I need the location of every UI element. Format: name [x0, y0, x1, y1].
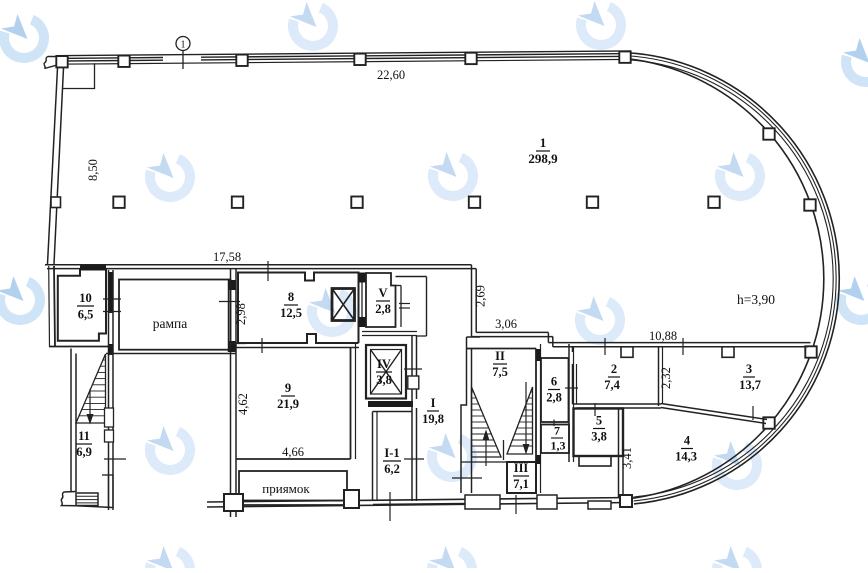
svg-text:6,2: 6,2 [384, 462, 400, 476]
svg-text:I-1: I-1 [384, 446, 399, 460]
svg-text:13,7: 13,7 [739, 378, 761, 392]
svg-text:1: 1 [540, 135, 547, 150]
svg-text:7,5: 7,5 [492, 365, 508, 379]
svg-text:10,88: 10,88 [649, 329, 677, 343]
svg-text:h=3,90: h=3,90 [737, 292, 775, 307]
svg-text:IV: IV [377, 357, 391, 371]
svg-text:1: 1 [181, 40, 186, 51]
svg-text:21,9: 21,9 [277, 397, 299, 411]
svg-text:17,58: 17,58 [213, 250, 241, 264]
svg-text:II: II [495, 349, 505, 363]
svg-text:14,3: 14,3 [675, 450, 697, 464]
svg-text:298,9: 298,9 [528, 151, 558, 166]
svg-text:7,1: 7,1 [513, 477, 529, 491]
svg-text:4,62: 4,62 [236, 393, 250, 415]
svg-text:4,66: 4,66 [282, 445, 304, 459]
svg-text:5: 5 [596, 414, 602, 428]
svg-text:7: 7 [554, 424, 560, 438]
svg-text:2,8: 2,8 [546, 391, 562, 405]
svg-text:22,60: 22,60 [377, 68, 405, 82]
svg-text:3,41: 3,41 [620, 447, 634, 469]
svg-text:рампа: рампа [153, 316, 188, 331]
svg-text:приямок: приямок [262, 481, 310, 496]
svg-text:10: 10 [79, 291, 92, 305]
svg-text:8,50: 8,50 [86, 159, 100, 181]
svg-text:2,69: 2,69 [474, 285, 488, 307]
svg-text:1,3: 1,3 [551, 439, 566, 453]
svg-text:3,06: 3,06 [495, 317, 517, 331]
svg-text:9: 9 [285, 381, 291, 395]
svg-text:4: 4 [684, 434, 691, 448]
svg-text:12,5: 12,5 [280, 306, 302, 320]
svg-text:6,5: 6,5 [78, 308, 94, 322]
svg-text:6: 6 [551, 375, 557, 389]
svg-text:7,4: 7,4 [604, 378, 620, 392]
svg-text:3: 3 [746, 362, 752, 376]
svg-text:2: 2 [611, 362, 617, 376]
svg-text:III: III [514, 461, 529, 475]
svg-text:2,32: 2,32 [659, 367, 673, 389]
svg-text:V: V [378, 286, 387, 300]
svg-text:3,8: 3,8 [376, 373, 392, 387]
svg-text:6,9: 6,9 [76, 445, 92, 459]
svg-text:19,8: 19,8 [422, 412, 444, 426]
svg-text:8: 8 [288, 290, 294, 304]
svg-text:2,8: 2,8 [375, 302, 391, 316]
svg-text:3,8: 3,8 [591, 430, 607, 444]
svg-text:11: 11 [78, 429, 90, 443]
svg-text:I: I [431, 396, 436, 410]
